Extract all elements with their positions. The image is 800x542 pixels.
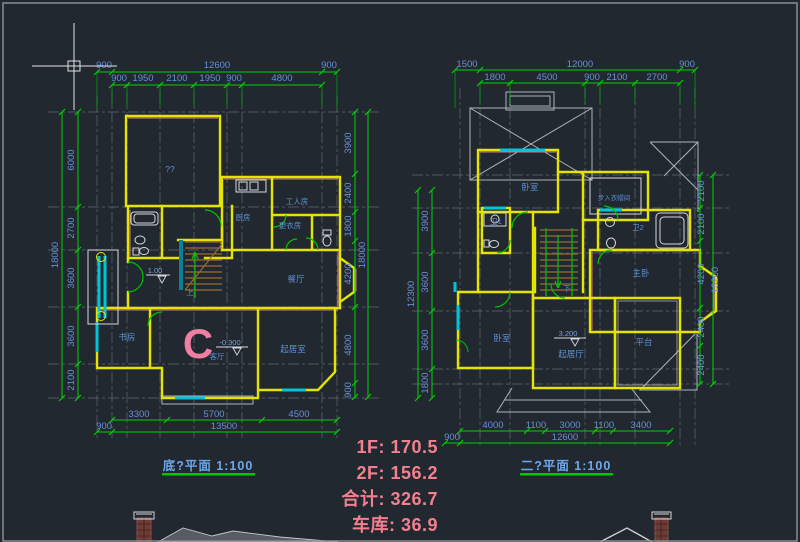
room-label-bedroom1: 卧室	[521, 182, 539, 192]
porch-trellis	[88, 250, 118, 324]
dim-label: 2100	[696, 180, 707, 201]
plan2-title: 二?平面 1:100	[521, 459, 612, 473]
dim-label: 900	[321, 60, 337, 71]
dim-label: 5700	[203, 409, 224, 420]
dim-label: 2100	[696, 213, 707, 234]
plan1-title-underline	[162, 473, 255, 476]
dim-label: 2100	[606, 72, 627, 83]
stat-2f: 2F: 156.2	[356, 463, 438, 483]
room-label-closet: 步入衣帽间	[598, 193, 631, 202]
dim-total-label: 18000	[50, 242, 61, 268]
dim-label: 1950	[199, 73, 220, 84]
dim-label: 4200	[696, 263, 707, 284]
room-label-bedroom2: 卧室	[493, 333, 511, 343]
dim-label: 3600	[66, 267, 77, 288]
dim-label: 2100	[66, 369, 77, 390]
dim-label: 3900	[343, 132, 354, 153]
room-label-study: 书房	[118, 332, 135, 342]
dim-label: 1800	[343, 215, 354, 236]
room-label-sitting: 起居室	[280, 344, 306, 354]
stair-down-label: 下	[563, 284, 571, 293]
stairs-plan2	[540, 228, 578, 296]
dim-total-label: 12300	[406, 281, 417, 307]
dim-label: 2400	[343, 182, 354, 203]
stat-total: 合计: 326.7	[341, 488, 438, 509]
stair-up-label: 上	[186, 288, 194, 297]
dim-label: 900	[343, 382, 354, 398]
dim-label: 1100	[526, 420, 546, 431]
dim-label: 1800	[420, 372, 431, 393]
crosshair-cursor	[32, 23, 117, 110]
room-label-sitting2: 起居厅	[558, 349, 584, 359]
dim-label: 900	[96, 421, 112, 432]
room-label-bath2: 卫2	[632, 223, 644, 232]
cad-viewport: 900 12600 900 900 1950 2100 1950 900 480…	[0, 0, 800, 542]
dim-label: 12000	[567, 59, 593, 70]
walls-plan1	[97, 116, 356, 398]
dim-label: 3600	[66, 325, 77, 346]
walls-plan2	[455, 150, 716, 388]
dim-label: 4500	[536, 72, 557, 83]
dim-label: 900	[584, 72, 600, 83]
dim-label: 1800	[484, 72, 505, 83]
drawing-canvas[interactable]: 900 12600 900 900 1950 2100 1950 900 480…	[0, 0, 800, 542]
stat-1f: 1F: 170.5	[356, 437, 438, 457]
room-label-kitchen: 厨房	[236, 212, 251, 222]
room-label-laundry: 更衣房	[279, 220, 302, 230]
dim-label: 2100	[166, 73, 187, 84]
plan2-title-underline	[520, 473, 613, 476]
level-label-living: -0.300	[219, 338, 240, 347]
dim-label: 3600	[420, 271, 431, 292]
dim-label: 13500	[211, 421, 237, 432]
dim-label: 4800	[271, 73, 292, 84]
level-label-2f: 3.200	[559, 329, 578, 338]
dim-label: 900	[111, 73, 127, 84]
dim-label: 1100	[594, 420, 614, 431]
roof-peak-right	[600, 528, 652, 542]
dim-label: 3400	[630, 420, 651, 431]
room-label-master: 主卧	[632, 268, 650, 278]
room-label-garage: ??	[165, 164, 175, 174]
dim-label: 900	[226, 73, 242, 84]
room-label-dining: 餐厅	[287, 274, 305, 284]
dim-label: 1500	[456, 59, 477, 70]
revision-letter-c: C	[183, 320, 213, 367]
dim-label: 900	[679, 59, 695, 70]
plan1-title: 底?平面 1:100	[163, 458, 254, 473]
dim-label: 6000	[66, 149, 77, 170]
dim-total-label: 18000	[357, 242, 368, 268]
dim-label: 2400	[696, 354, 707, 375]
roof-ridge-left	[158, 528, 338, 542]
dim-label: 3000	[559, 420, 580, 431]
dim-label: 3300	[128, 409, 149, 420]
dim-label: 12600	[204, 60, 230, 71]
area-statistics: 1F: 170.5 2F: 156.2 合计: 326.7 车库: 36.9	[341, 437, 438, 535]
dim-total-label: 13200	[710, 267, 721, 293]
room-label-terrace: 平台	[635, 337, 652, 347]
room-label-worker: 工人房	[286, 196, 309, 206]
dim-label: 900	[444, 432, 460, 443]
dim-label: 4200	[343, 263, 354, 284]
dim-label: 1950	[132, 73, 153, 84]
dim-label: 2700	[66, 217, 77, 238]
dim-label: 4000	[482, 420, 503, 431]
dim-label: 2400	[696, 316, 707, 337]
dim-label: 4500	[288, 409, 309, 420]
room-label-bath1: 卫1	[490, 217, 502, 226]
stat-garage: 车库: 36.9	[352, 514, 438, 535]
dim-label: 2700	[646, 72, 667, 83]
level-label-entry: 1.00	[148, 266, 163, 275]
dim-label: 3600	[420, 329, 431, 350]
dim-label: 3900	[420, 210, 431, 231]
dim-label: 12600	[552, 432, 578, 443]
dim-label: 4800	[343, 334, 354, 355]
